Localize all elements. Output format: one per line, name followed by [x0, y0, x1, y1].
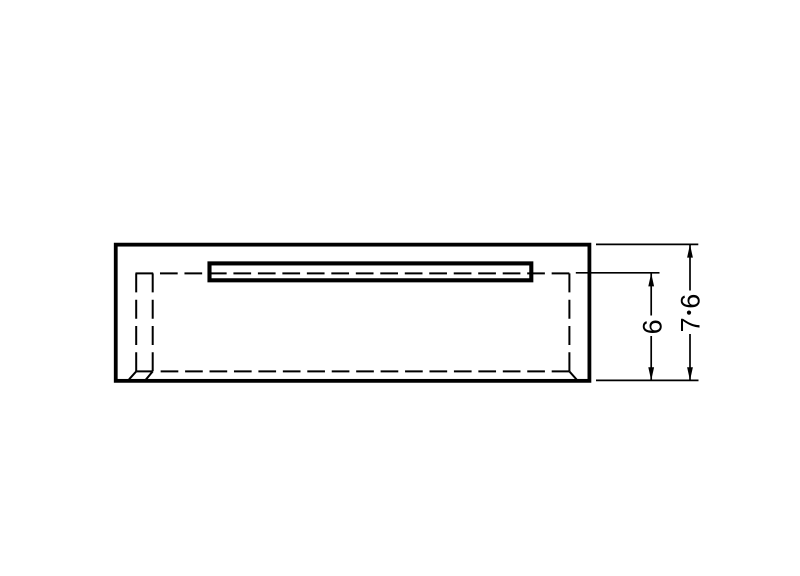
svg-text:7: 7: [675, 317, 705, 332]
svg-text:6: 6: [638, 319, 668, 334]
svg-text:6: 6: [675, 294, 705, 309]
